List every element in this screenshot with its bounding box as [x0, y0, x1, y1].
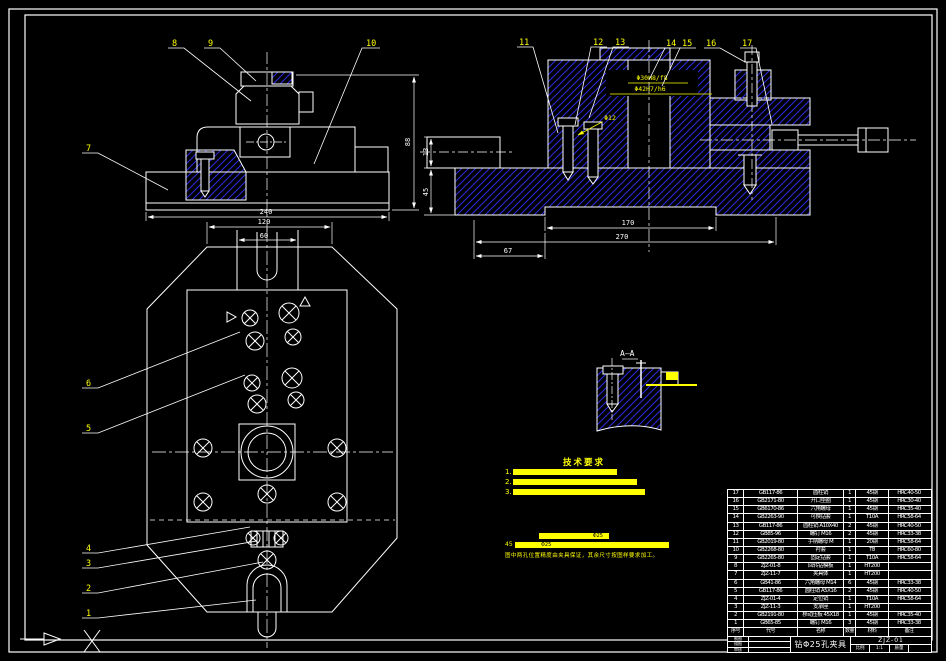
fit-phi12: Φ12 — [604, 114, 616, 122]
bom-cell-material: 45钢 — [856, 531, 889, 538]
bom-row: 10GB2268-80衬套1T8HRC60-80 — [728, 547, 931, 555]
balloon-17: 17 — [742, 39, 752, 49]
dim-height: 88 — [404, 138, 412, 146]
bom-cell-material: HT200 — [856, 563, 889, 570]
bom-cell-note — [889, 604, 929, 611]
bom-cell-code: ZJZ-01-8 — [744, 563, 798, 570]
bom-row: 3ZJZ-11-3支承座1HT200 — [728, 604, 931, 612]
technical-requirements: 技术要求 1. 装配前所有零件均须清洗干净 2. 钻套轴线对定位底面的垂直度不大… — [505, 456, 685, 559]
bom-cell-code: GB2171-80 — [744, 498, 798, 505]
sig-box — [749, 648, 790, 653]
bom-row: 4ZJZ-01-4定位销1T10AHRC58-64 — [728, 596, 931, 604]
bom-cell-name: 可换钻套 — [798, 514, 844, 521]
dim-step: 13 — [422, 148, 430, 156]
cad-drawing-page: 240 88 7 8 9 10 — [0, 0, 946, 661]
plan-crossed-holes — [194, 303, 346, 569]
fit-30H8: Φ30H8/f8 — [636, 74, 667, 82]
bom-cell-no: 17 — [728, 490, 744, 497]
bom-cell-note: HRC58-64 — [889, 539, 929, 546]
bom-cell-no: 6 — [728, 580, 744, 587]
bom-cell-no: 16 — [728, 498, 744, 505]
corner-markers — [20, 630, 100, 652]
bom-cell-code: GB2191-80 — [744, 612, 798, 619]
bom-cell-material: HT200 — [856, 571, 889, 578]
bom-cell-material: 45钢 — [856, 580, 889, 587]
title-block-signatures: 制图 描图 审核 — [728, 637, 791, 653]
bom-cell-qty: 1 — [844, 563, 856, 570]
bom-cell-name: 回转钻模板 — [798, 563, 844, 570]
tech-req-item-text: 各定位元件磨损后应及时更换以保证加工精度 — [513, 489, 645, 495]
dim-left-offset: 67 — [504, 247, 512, 255]
tech-req-item-no: 2. — [505, 478, 513, 486]
bom-cell-name: 螺钉 M16 — [798, 531, 844, 538]
bom-cell-qty: 3 — [844, 620, 856, 627]
bom-cell-name: 六角螺母 — [798, 506, 844, 513]
bom-cell-note: HRC33-38 — [889, 620, 929, 627]
bom-cell-name: 移动压板 45X18 — [798, 612, 844, 619]
tech-req-callout: Φ25 — [505, 531, 685, 540]
tech-req-item-text: 钻套轴线对定位底面的垂直度不大于0.02 — [513, 479, 637, 485]
bom-cell-code: ZJZ-11-7 — [744, 571, 798, 578]
bom-cell-code: ZJZ-11-3 — [744, 604, 798, 611]
balloon-10: 10 — [366, 39, 376, 49]
scale-label: 比例 — [851, 645, 870, 652]
bom-cell-material: 45钢 — [856, 498, 889, 505]
balloon-3: 3 — [86, 559, 91, 569]
tech-req-item: 1. 装配前所有零件均须清洗干净 — [505, 467, 685, 477]
bom-cell-note: HRC35-40 — [889, 612, 929, 619]
bom-cell-no: 14 — [728, 514, 744, 521]
bom-cell-qty: 2 — [844, 523, 856, 530]
bom-cell-material: T10A — [856, 514, 889, 521]
bom-cell-material: 20钢 — [856, 539, 889, 546]
bom-cell-code: GB2265-80 — [744, 555, 798, 562]
detail-tag-blob — [666, 372, 678, 380]
bom-cell-code: GB41-86 — [744, 580, 798, 587]
sig-label: 描图 — [728, 642, 749, 647]
bom-row: 15GB6170-86六角螺母145钢HRC35-40 — [728, 506, 931, 514]
bom-cell-qty: 1 — [844, 539, 856, 546]
balloon-1: 1 — [86, 609, 91, 619]
callout-prefix: 45 — [505, 541, 515, 548]
bom-cell-material: T10A — [856, 555, 889, 562]
dim-base-width: 270 — [616, 233, 629, 241]
dim-boss-width: 170 — [622, 219, 635, 227]
bom-header-note: 备注 — [889, 628, 929, 635]
bom-row: 2GB2191-80移动压板 45X18145钢HRC35-40 — [728, 612, 931, 620]
sig-box — [749, 637, 790, 642]
tech-req-item-no: 3. — [505, 488, 513, 496]
balloon-13: 13 — [615, 38, 625, 48]
plan-view-dims: 120 60 — [207, 218, 332, 244]
bom-cell-code: GB2268-80 — [744, 547, 798, 554]
bom-cell-note: HRC58-64 — [889, 596, 929, 603]
bom-row: 8ZJZ-01-8回转钻模板1HT200 — [728, 563, 931, 571]
bom-cell-code: ZJZ-01-4 — [744, 596, 798, 603]
x-marker — [84, 630, 100, 652]
bom-cell-name: 定位销 — [798, 596, 844, 603]
plan-view-balloons: 6 5 4 3 2 1 — [82, 332, 263, 619]
bom-cell-code: GB117-86 — [744, 490, 798, 497]
title-block: 制图 描图 审核 钻Φ25孔夹具 ZJZ-01 比例 1:1 质量 — [728, 637, 931, 653]
bom-cell-name: 圆柱销 A5X16 — [798, 588, 844, 595]
bom-row: 6GB41-86六角螺母 M14645钢HRC33-38 — [728, 580, 931, 588]
bom-cell-code: GB65-85 — [744, 620, 798, 627]
bom-cell-qty: 1 — [844, 612, 856, 619]
bom-cell-material: 45钢 — [856, 620, 889, 627]
drawing-number: ZJZ-01 — [851, 637, 931, 645]
balloon-8: 8 — [172, 39, 177, 49]
bom-cell-note: HRC40-50 — [889, 523, 929, 530]
mass-value — [909, 645, 931, 652]
tech-req-item-no: 1. — [505, 468, 513, 476]
bom-row: 11GB2019-80手柄螺母 M120钢HRC58-64 — [728, 539, 931, 547]
mass-label: 质量 — [890, 645, 909, 652]
detail-view: A—A — [597, 349, 697, 431]
scale-row: 比例 1:1 质量 — [851, 645, 931, 652]
bom-cell-name: 手柄螺母 M — [798, 539, 844, 546]
callout-dim: Φ25 — [515, 542, 669, 548]
bom-cell-material: 45钢 — [856, 523, 889, 530]
bom-row: 7ZJZ-11-7夹具体1HT200 — [728, 571, 931, 579]
bom-cell-name: 固定钻套 — [798, 555, 844, 562]
bom-cell-note: HRC33-38 — [889, 531, 929, 538]
bom-cell-note — [889, 571, 929, 578]
bom-row: 12GB85-96螺钉 M16245钢HRC33-38 — [728, 531, 931, 539]
scale-value: 1:1 — [870, 645, 890, 652]
bom-cell-code: GB117-86 — [744, 523, 798, 530]
tech-req-item: 3. 各定位元件磨损后应及时更换以保证加工精度 — [505, 487, 685, 497]
balloon-4: 4 — [86, 544, 91, 554]
bom-row: 5GB117-86圆柱销 A5X16245钢HRC40-50 — [728, 588, 931, 596]
balloon-16: 16 — [706, 39, 716, 49]
bom-cell-name: 螺钉 M16 — [798, 620, 844, 627]
bom-cell-no: 10 — [728, 547, 744, 554]
bom-header-no: 序号 — [728, 628, 744, 635]
bom-row: 17GB117-86圆柱销145钢HRC40-50 — [728, 490, 931, 498]
bom-cell-no: 5 — [728, 588, 744, 595]
bom-cell-name: 衬套 — [798, 547, 844, 554]
bom-cell-note: HRC33-38 — [889, 580, 929, 587]
bom-cell-no: 11 — [728, 539, 744, 546]
bom-cell-note: HRC58-64 — [889, 514, 929, 521]
bom-cell-no: 2 — [728, 612, 744, 619]
balloon-12: 12 — [593, 38, 603, 48]
bom-cell-qty: 6 — [844, 580, 856, 587]
dim-base-height: 45 — [422, 188, 430, 196]
bom-cell-name: 夹具体 — [798, 571, 844, 578]
tech-req-item: 2. 钻套轴线对定位底面的垂直度不大于0.02 — [505, 477, 685, 487]
bom-cell-no: 3 — [728, 604, 744, 611]
bom-cell-qty: 1 — [844, 506, 856, 513]
bom-cell-note: HRC40-50 — [889, 588, 929, 595]
dim-slot-width: 60 — [260, 232, 268, 240]
bom-cell-qty: 2 — [844, 588, 856, 595]
bom-header-row: 序号 代号 名称 数量 材料 备注 — [728, 628, 931, 636]
bom-cell-note: HRC60-80 — [889, 547, 929, 554]
callout-dim: Φ25 — [539, 533, 609, 539]
bom-cell-material: 45钢 — [856, 588, 889, 595]
balloon-2: 2 — [86, 584, 91, 594]
bom-cell-material: T8 — [856, 547, 889, 554]
section-view — [420, 40, 916, 252]
bom-cell-code: GB117-86 — [744, 588, 798, 595]
bom-cell-note: HRC58-64 — [889, 555, 929, 562]
fit-42H7: Φ42H7/h6 — [634, 85, 665, 93]
bom-cell-no: 13 — [728, 523, 744, 530]
balloon-9: 9 — [208, 39, 213, 49]
detail-label: A—A — [620, 349, 635, 358]
bom-cell-qty: 1 — [844, 547, 856, 554]
tech-req-callout: 45 Φ25 — [505, 540, 685, 549]
bom-cell-no: 15 — [728, 506, 744, 513]
bom-cell-no: 4 — [728, 596, 744, 603]
bom-cell-no: 9 — [728, 555, 744, 562]
bom-cell-material: 45钢 — [856, 506, 889, 513]
bom-cell-material: T10A — [856, 596, 889, 603]
bom-cell-qty: 1 — [844, 604, 856, 611]
bom-cell-name: 圆柱销 A10X40 — [798, 523, 844, 530]
bom-cell-note: HRC30-40 — [889, 498, 929, 505]
bom-row: 13GB117-86圆柱销 A10X40245钢HRC40-50 — [728, 523, 931, 531]
dim-overall-width: 240 — [260, 208, 273, 216]
bom-cell-qty: 1 — [844, 596, 856, 603]
bom-cell-note — [889, 563, 929, 570]
dim-plan-width: 120 — [258, 218, 271, 226]
bom-cell-no: 8 — [728, 563, 744, 570]
tech-req-item-text: 装配前所有零件均须清洗干净 — [513, 469, 617, 475]
bom-cell-qty: 1 — [844, 571, 856, 578]
bom-row: 14GB2263-90可换钻套1T10AHRC58-64 — [728, 514, 931, 522]
bom-cell-material: 45钢 — [856, 490, 889, 497]
bom-cell-no: 12 — [728, 531, 744, 538]
sig-label: 审核 — [728, 648, 749, 653]
front-view — [146, 52, 389, 232]
bom-header-material: 材料 — [856, 628, 889, 635]
bom-cell-no: 7 — [728, 571, 744, 578]
bom-cell-material: 45钢 — [856, 612, 889, 619]
bom-header-name: 名称 — [798, 628, 844, 635]
tech-req-note: 图中两孔位置精度由夹具保证，其余尺寸按图样要求加工。 — [505, 551, 685, 559]
sig-box — [749, 642, 790, 647]
bom-rows: 17GB117-86圆柱销145钢HRC40-5016GB2171-80开口垫圈… — [728, 490, 931, 628]
bom-cell-code: GB2019-80 — [744, 539, 798, 546]
bom-cell-material: HT200 — [856, 604, 889, 611]
bom-cell-name: 圆柱销 — [798, 490, 844, 497]
balloon-5: 5 — [86, 424, 91, 434]
bom-cell-note: HRC40-50 — [889, 490, 929, 497]
balloon-6: 6 — [86, 379, 91, 389]
datum-arrow-icon — [44, 633, 60, 645]
balloon-11: 11 — [519, 38, 529, 48]
bom-cell-name: 支承座 — [798, 604, 844, 611]
bom-row: 16GB2171-80开口垫圈145钢HRC30-40 — [728, 498, 931, 506]
drawing-title: 钻Φ25孔夹具 — [791, 637, 851, 653]
bom-cell-code: GB85-96 — [744, 531, 798, 538]
balloon-7: 7 — [86, 144, 91, 154]
bom-table: 17GB117-86圆柱销145钢HRC40-5016GB2171-80开口垫圈… — [727, 489, 932, 653]
balloon-15: 15 — [682, 39, 692, 49]
bom-header-code: 代号 — [744, 628, 798, 635]
bom-cell-qty: 1 — [844, 514, 856, 521]
bom-cell-qty: 1 — [844, 490, 856, 497]
bom-cell-no: 1 — [728, 620, 744, 627]
bom-cell-code: GB2263-90 — [744, 514, 798, 521]
plan-view — [147, 228, 397, 648]
bom-cell-name: 六角螺母 M14 — [798, 580, 844, 587]
balloon-14: 14 — [666, 39, 676, 49]
bom-cell-qty: 1 — [844, 555, 856, 562]
bom-cell-note: HRC35-40 — [889, 506, 929, 513]
tech-req-heading: 技术要求 — [563, 456, 685, 467]
bom-row: 1GB65-85螺钉 M16345钢HRC33-38 — [728, 620, 931, 628]
bom-header-qty: 数量 — [844, 628, 856, 635]
bom-cell-qty: 2 — [844, 531, 856, 538]
bom-cell-qty: 1 — [844, 498, 856, 505]
bom-row: 9GB2265-80固定钻套1T10AHRC58-64 — [728, 555, 931, 563]
bom-cell-name: 开口垫圈 — [798, 498, 844, 505]
bom-cell-code: GB6170-86 — [744, 506, 798, 513]
